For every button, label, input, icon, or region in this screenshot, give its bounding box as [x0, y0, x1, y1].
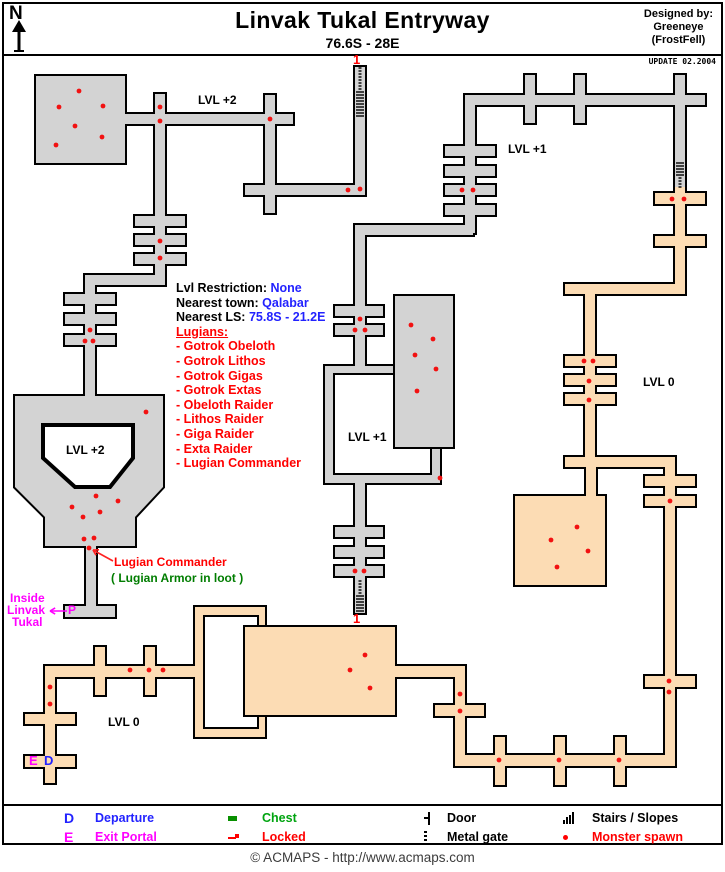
map-canvas	[0, 0, 725, 872]
dungeon-map-page: N Linvak Tukal Entryway 76.6S - 28E Desi…	[0, 0, 725, 872]
footer-copyright: © ACMAPS - http://www.acmaps.com	[0, 850, 725, 865]
